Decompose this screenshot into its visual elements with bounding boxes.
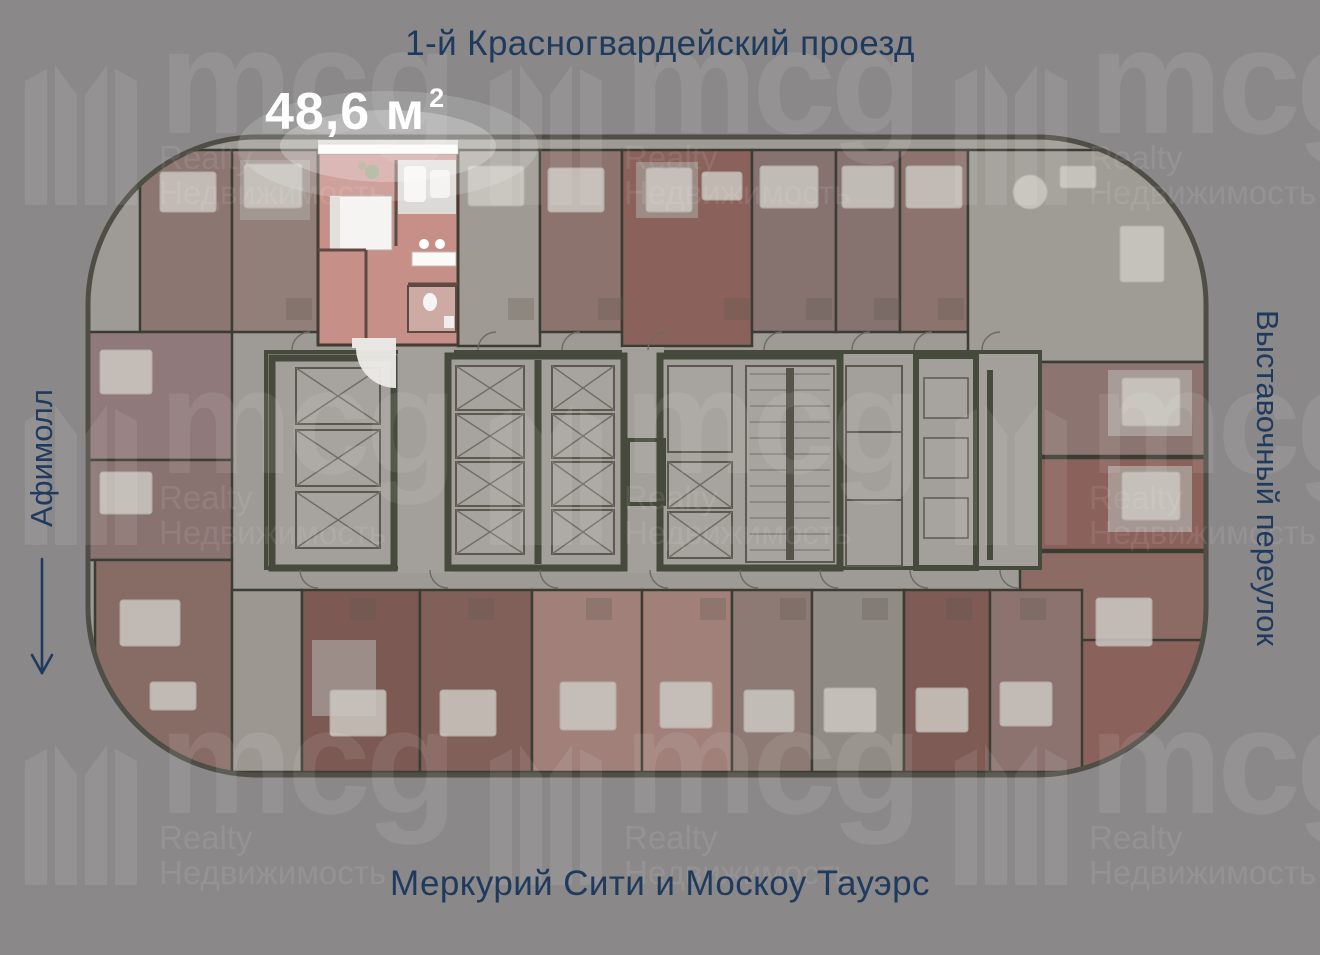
towers-label-bottom: Меркурий Сити и Москоу Тауэрс bbox=[0, 864, 1320, 904]
mall-label-left: Афимолл bbox=[10, 320, 74, 750]
unit-area-superscript: 2 bbox=[429, 83, 445, 113]
left-arrow-icon bbox=[29, 553, 55, 681]
unit-area-value: 48,6 м bbox=[265, 83, 425, 141]
kitchen-counter bbox=[412, 252, 456, 266]
stair-rail bbox=[786, 368, 794, 560]
entry-door bbox=[352, 338, 396, 348]
mall-label-text: Афимолл bbox=[24, 389, 60, 527]
floor-plan-page: mcg Realty Недвижимость mcg Realty Недви… bbox=[0, 0, 1320, 955]
unit-area-label: 48,6 м2 bbox=[265, 82, 441, 142]
core-service-rooms bbox=[846, 356, 990, 568]
street-label-right: Выставочный переулок bbox=[1235, 238, 1299, 718]
stairwell-block bbox=[660, 356, 840, 568]
street-label-top: 1-й Красногвардейский проезд bbox=[0, 24, 1320, 64]
floor-plan bbox=[0, 0, 1320, 955]
elevator-bank-middle bbox=[448, 356, 624, 568]
street-label-right-text: Выставочный переулок bbox=[1249, 310, 1285, 646]
